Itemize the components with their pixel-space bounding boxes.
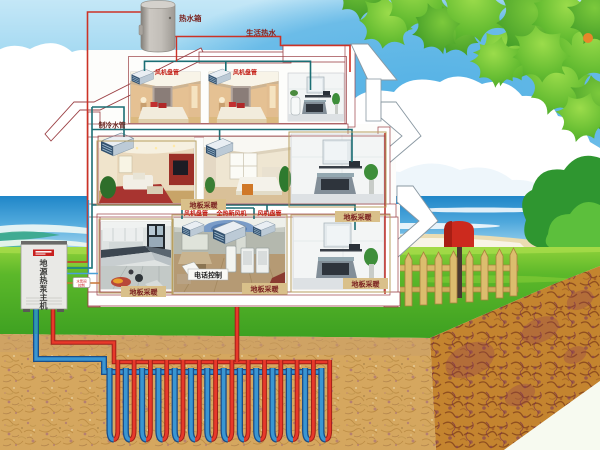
svg-text:风机盘管: 风机盘管: [155, 69, 179, 77]
svg-text:热水箱: 热水箱: [179, 13, 202, 23]
svg-text:地: 地: [40, 258, 48, 268]
svg-text:生活热水: 生活热水: [246, 28, 276, 38]
svg-text:主: 主: [40, 292, 48, 302]
svg-text:地板采暖: 地板采暖: [251, 285, 280, 294]
svg-text:制冷水管: 制冷水管: [99, 121, 126, 130]
svg-text:地板采暖: 地板采暖: [352, 280, 381, 289]
svg-text:机: 机: [40, 301, 48, 311]
svg-text:风机盘管: 风机盘管: [184, 210, 208, 218]
svg-text:地板采暖: 地板采暖: [190, 201, 219, 210]
svg-text:地板采暖: 地板采暖: [130, 288, 159, 297]
svg-text:源: 源: [40, 267, 48, 277]
svg-text:地板采暖: 地板采暖: [344, 213, 373, 222]
svg-text:风机盘管: 风机盘管: [258, 210, 282, 218]
svg-text:热: 热: [40, 275, 48, 285]
svg-text:全热新风机: 全热新风机: [216, 210, 247, 218]
svg-text:控制: 控制: [78, 283, 85, 288]
svg-text:风机盘管: 风机盘管: [233, 69, 257, 77]
svg-text:电话控制: 电话控制: [194, 271, 222, 280]
